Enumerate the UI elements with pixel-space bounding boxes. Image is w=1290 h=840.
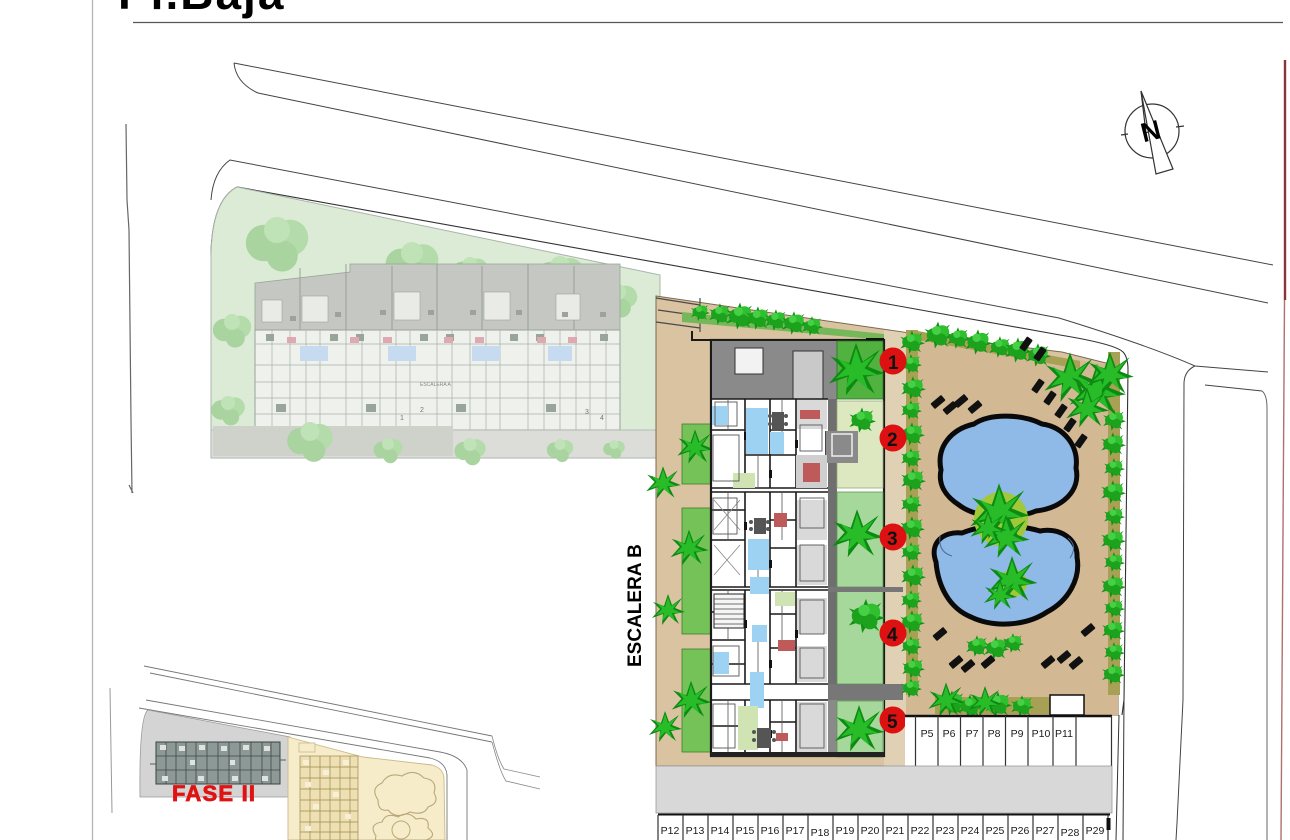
svg-text:2: 2	[420, 407, 424, 414]
svg-text:3: 3	[585, 409, 589, 416]
svg-text:P13: P13	[686, 825, 705, 837]
svg-text:4: 4	[887, 625, 898, 646]
svg-text:5: 5	[887, 712, 898, 733]
svg-text:P24: P24	[961, 825, 980, 837]
svg-text:P23: P23	[936, 825, 955, 837]
svg-text:P19: P19	[836, 825, 855, 837]
svg-text:P27: P27	[1036, 825, 1055, 837]
svg-text:P14: P14	[711, 825, 730, 837]
svg-text:P22: P22	[911, 825, 930, 837]
svg-text:P8: P8	[988, 728, 1001, 740]
svg-text:P10: P10	[1032, 728, 1051, 740]
svg-text:P18: P18	[811, 827, 830, 839]
svg-text:FASE II: FASE II	[172, 781, 256, 806]
svg-text:P17: P17	[786, 825, 805, 837]
svg-text:Pl.Baja: Pl.Baja	[118, 0, 285, 19]
svg-text:P9: P9	[1011, 728, 1024, 740]
svg-text:P12: P12	[661, 825, 680, 837]
svg-text:P21: P21	[886, 825, 905, 837]
svg-text:P25: P25	[986, 825, 1005, 837]
svg-text:P5: P5	[921, 728, 934, 740]
svg-text:P16: P16	[761, 825, 780, 837]
svg-text:P15: P15	[736, 825, 755, 837]
svg-text:P29: P29	[1086, 825, 1105, 837]
svg-text:P6: P6	[943, 728, 956, 740]
svg-text:P28: P28	[1061, 827, 1080, 839]
svg-text:1: 1	[400, 415, 404, 422]
svg-text:3: 3	[887, 529, 898, 550]
svg-text:4: 4	[600, 415, 604, 422]
svg-text:ESCALERA A: ESCALERA A	[420, 382, 452, 388]
svg-text:ESCALERA B: ESCALERA B	[625, 544, 646, 667]
svg-text:P20: P20	[861, 825, 880, 837]
svg-text:2: 2	[887, 430, 898, 451]
svg-text:P11: P11	[1055, 728, 1073, 740]
svg-text:1: 1	[888, 353, 899, 374]
svg-text:P26: P26	[1011, 825, 1030, 837]
svg-text:P7: P7	[966, 728, 979, 740]
